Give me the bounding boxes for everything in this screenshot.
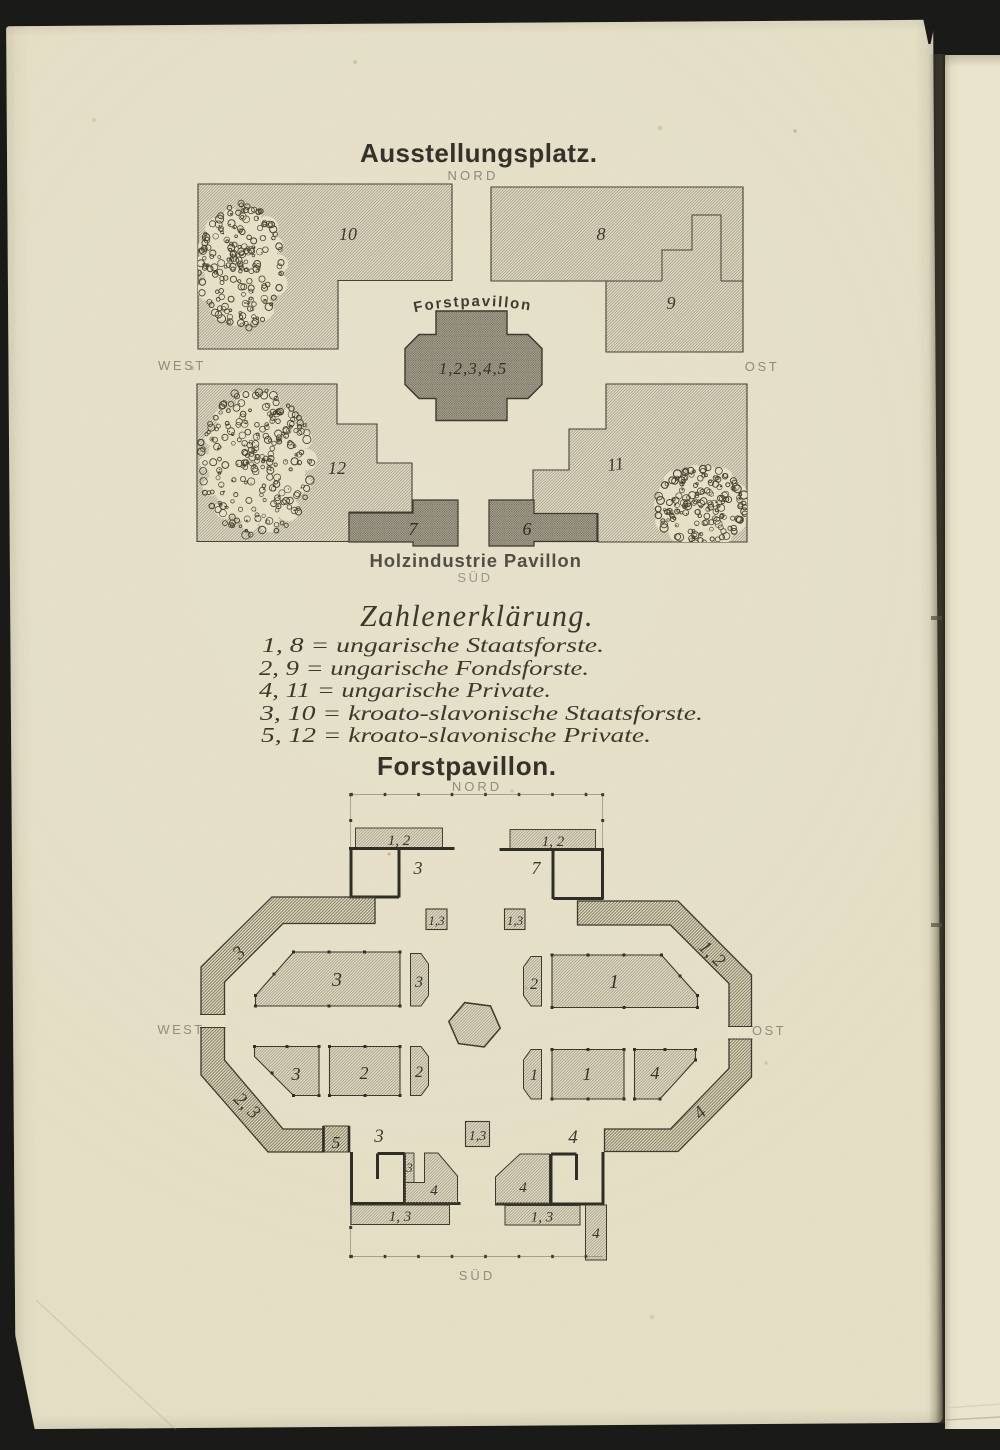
svg-text:9: 9 bbox=[667, 293, 676, 313]
svg-text:2, 9 = ungarische Fondsforste.: 2, 9 = ungarische Fondsforste. bbox=[259, 656, 589, 680]
svg-text:10: 10 bbox=[339, 224, 357, 244]
svg-text:2: 2 bbox=[530, 976, 538, 993]
svg-text:4: 4 bbox=[568, 1127, 578, 1148]
svg-text:OST: OST bbox=[752, 1023, 786, 1038]
svg-text:3: 3 bbox=[405, 1160, 413, 1175]
svg-text:4: 4 bbox=[430, 1183, 438, 1199]
svg-text:5: 5 bbox=[332, 1133, 341, 1152]
svg-text:Forstpavillon.: Forstpavillon. bbox=[377, 751, 557, 781]
svg-text:1,3: 1,3 bbox=[469, 1129, 487, 1144]
svg-text:3: 3 bbox=[414, 974, 423, 991]
svg-text:NORD: NORD bbox=[447, 168, 498, 183]
svg-text:SÜD: SÜD bbox=[459, 1268, 495, 1283]
svg-text:OST: OST bbox=[745, 359, 780, 374]
svg-text:11: 11 bbox=[606, 453, 625, 475]
svg-text:3, 10 = kroato-slavonische Sta: 3, 10 = kroato-slavonische Staatsforste. bbox=[259, 701, 703, 725]
svg-text:Ausstellungsplatz.: Ausstellungsplatz. bbox=[360, 138, 598, 168]
svg-text:3: 3 bbox=[331, 969, 342, 991]
svg-text:1: 1 bbox=[583, 1064, 592, 1084]
svg-text:4, 11 = ungarische Private.: 4, 11 = ungarische Private. bbox=[259, 678, 551, 702]
svg-text:1, 3: 1, 3 bbox=[389, 1209, 412, 1225]
svg-text:7: 7 bbox=[532, 858, 542, 878]
svg-text:Zahlenerklärung.: Zahlenerklärung. bbox=[360, 598, 594, 633]
svg-text:1, 2: 1, 2 bbox=[388, 833, 411, 849]
svg-text:1, 3: 1, 3 bbox=[531, 1210, 554, 1226]
svg-text:Holzindustrie Pavillon: Holzindustrie Pavillon bbox=[370, 550, 583, 571]
svg-text:3: 3 bbox=[291, 1064, 301, 1084]
svg-text:1,3: 1,3 bbox=[507, 913, 524, 928]
svg-text:7: 7 bbox=[409, 519, 419, 539]
svg-text:WEST: WEST bbox=[157, 1022, 204, 1037]
svg-text:1, 2: 1, 2 bbox=[542, 834, 565, 850]
svg-text:4: 4 bbox=[651, 1063, 660, 1083]
svg-text:5, 12 = kroato-slavonische Pri: 5, 12 = kroato-slavonische Private. bbox=[261, 723, 651, 747]
svg-text:WEST: WEST bbox=[158, 358, 206, 373]
svg-text:3: 3 bbox=[413, 858, 423, 878]
svg-text:8: 8 bbox=[597, 224, 606, 244]
svg-text:1,2,3,4,5: 1,2,3,4,5 bbox=[439, 359, 508, 378]
svg-text:3: 3 bbox=[373, 1126, 384, 1147]
svg-text:1: 1 bbox=[609, 971, 619, 993]
svg-text:4: 4 bbox=[592, 1226, 600, 1242]
svg-text:1, 8 = ungarische Staatsforste: 1, 8 = ungarische Staatsforste. bbox=[262, 633, 604, 657]
svg-text:6: 6 bbox=[523, 519, 532, 539]
svg-text:SÜD: SÜD bbox=[457, 570, 492, 585]
svg-text:NORD: NORD bbox=[452, 779, 502, 794]
svg-text:1: 1 bbox=[530, 1067, 538, 1084]
svg-text:4: 4 bbox=[519, 1180, 527, 1196]
svg-text:2: 2 bbox=[360, 1063, 369, 1083]
svg-text:2: 2 bbox=[415, 1064, 423, 1081]
svg-text:12: 12 bbox=[328, 458, 346, 478]
svg-text:1,3: 1,3 bbox=[428, 913, 445, 928]
